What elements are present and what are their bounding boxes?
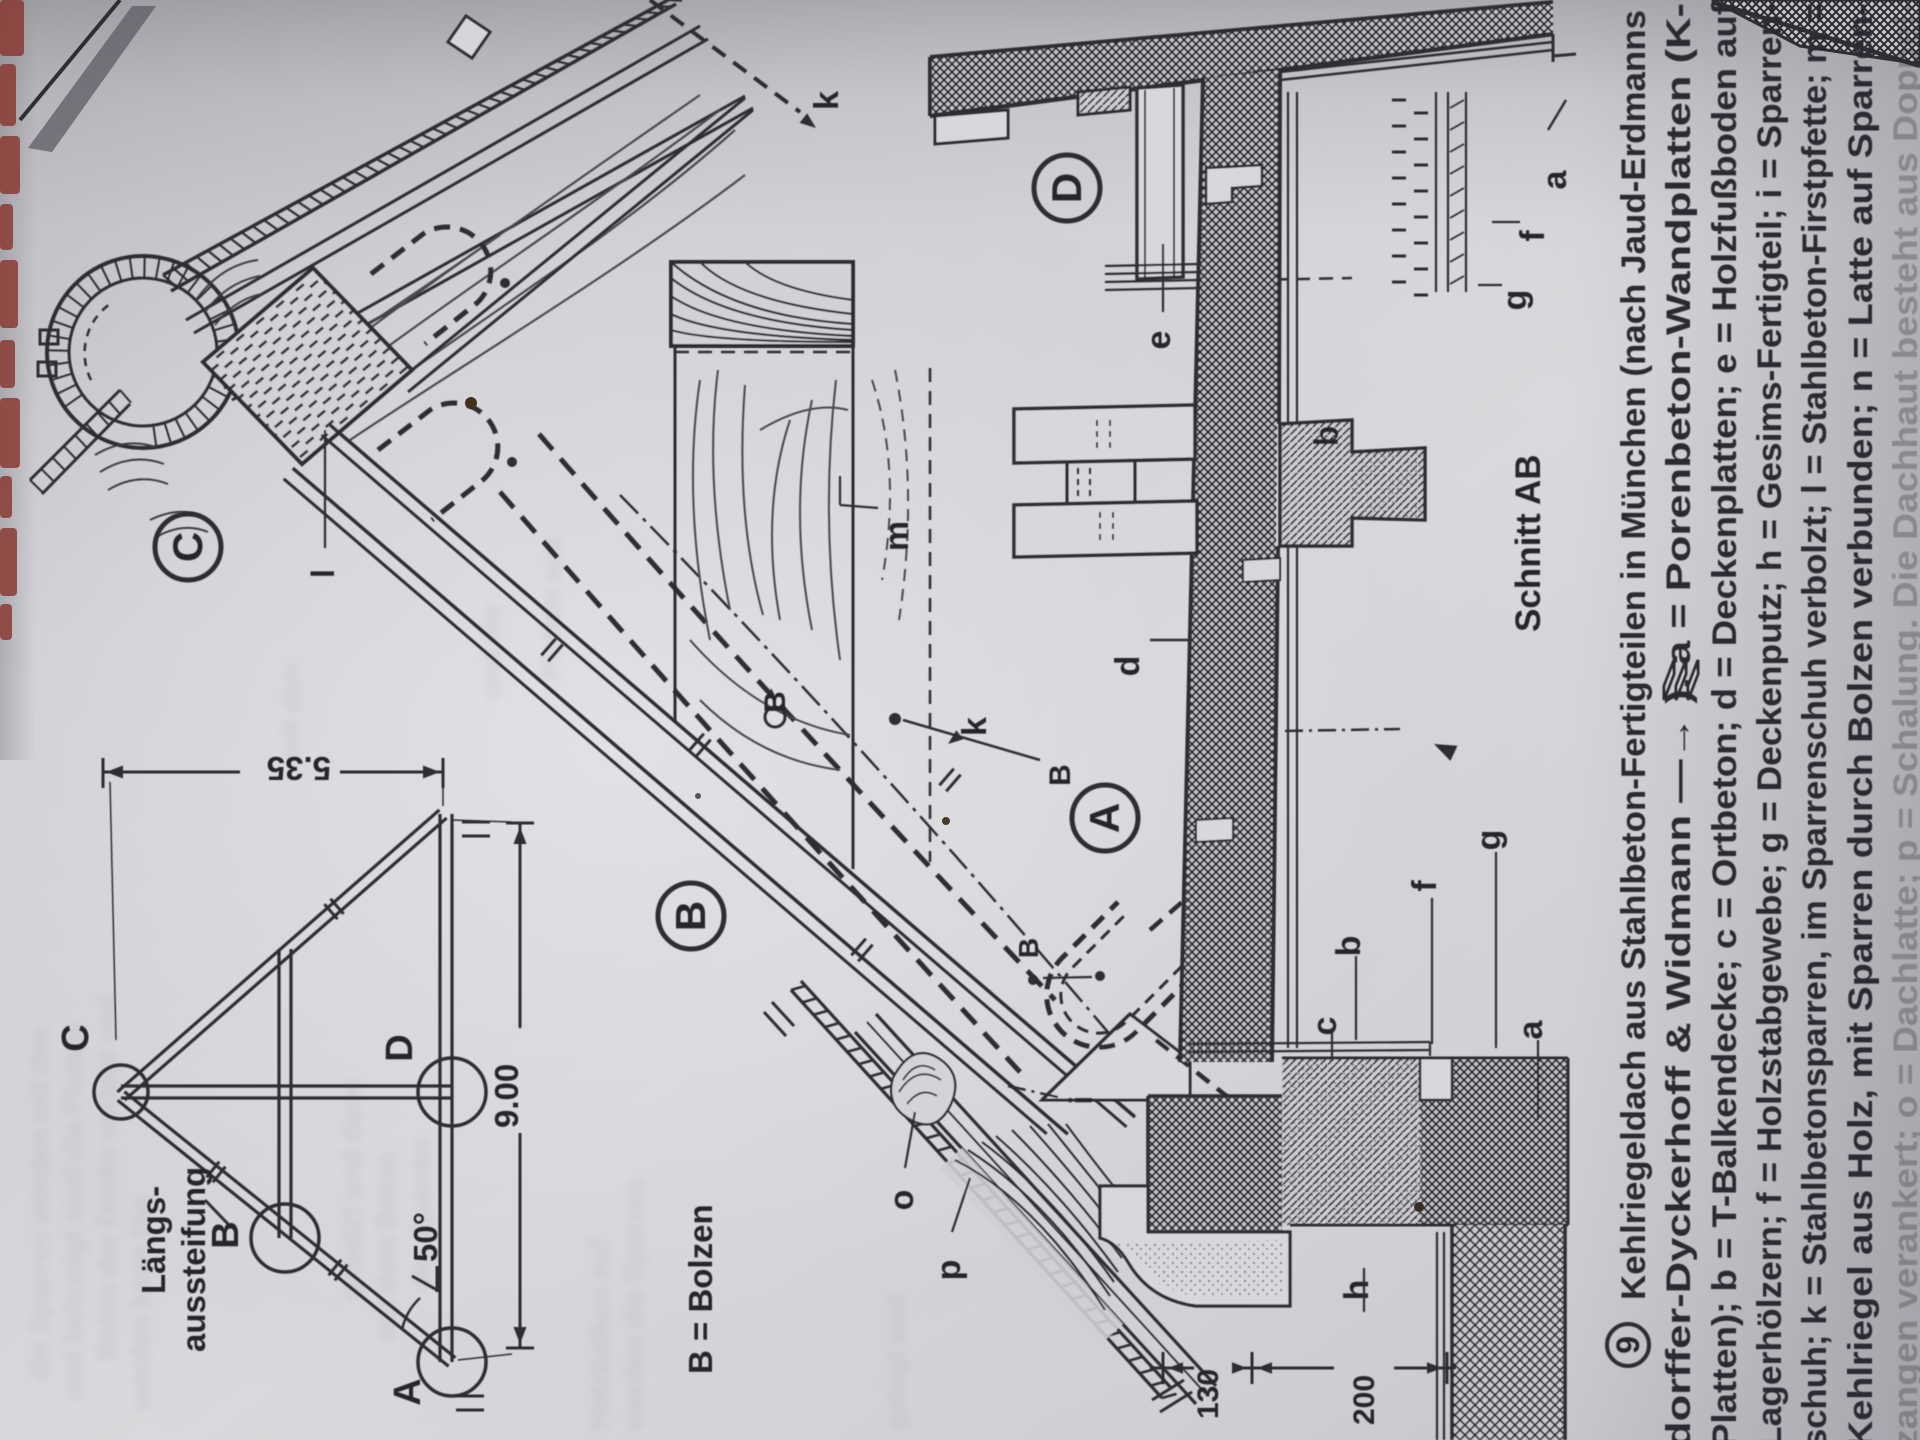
- svg-text:a: a: [1536, 169, 1574, 189]
- svg-text:zangen verankert; o = Dachlatt: zangen verankert; o = Dachlatte; p = Sch…: [1887, 3, 1920, 1440]
- svg-text:b: b: [1308, 426, 1346, 447]
- svg-text:k: k: [956, 717, 994, 736]
- svg-text:o: o: [883, 1190, 921, 1211]
- svg-text:werden die Sparren: werden die Sparren: [619, 1179, 649, 1431]
- svg-text:A: A: [1081, 803, 1128, 833]
- svg-text:130: 130: [1192, 1369, 1225, 1419]
- svg-text:Kehlriegeldach aus Stahlbeton-: Kehlriegeldach aus Stahlbeton-Fertigteil…: [1615, 10, 1653, 1300]
- svg-text:g: g: [1470, 830, 1508, 851]
- svg-text:C: C: [164, 532, 211, 562]
- svg-text:g: g: [1496, 290, 1534, 311]
- svg-text:a: a: [1512, 1019, 1550, 1039]
- svg-text:B = Bolzen: B = Bolzen: [682, 1204, 719, 1374]
- svg-text:i: i: [1063, 1096, 1099, 1105]
- svg-text:und die: und die: [476, 604, 506, 700]
- svg-text:b: b: [1330, 936, 1368, 957]
- svg-text:mit den: mit den: [276, 664, 306, 760]
- svg-text:dorffer-Dyckerhoff & Widmann: dorffer-Dyckerhoff & Widmann —→ ). a = P…: [1660, 3, 1698, 1440]
- svg-text:h: h: [1338, 1280, 1376, 1301]
- svg-text:Platten); b = T-Balkendecke; c: Platten); b = T-Balkendecke; c = Ortbeto…: [1706, 2, 1744, 1440]
- svg-text:p: p: [930, 1260, 968, 1281]
- svg-text:aussteifung: aussteifung: [175, 1167, 212, 1352]
- svg-text:B: B: [759, 691, 792, 713]
- svg-text:9.00: 9.00: [488, 1064, 525, 1128]
- svg-text:l: l: [305, 569, 341, 578]
- svg-text:B: B: [1044, 764, 1077, 786]
- svg-text:Holzbalken auf: Holzbalken auf: [584, 1238, 614, 1430]
- svg-text:Kehlriegel aus Holz, mit Sparr: Kehlriegel aus Holz, mit Sparren durch B…: [1842, 3, 1880, 1440]
- svg-text:k: k: [808, 91, 846, 110]
- svg-text:m: m: [878, 521, 916, 551]
- svg-text:A: A: [387, 1378, 429, 1405]
- svg-text:e: e: [1140, 331, 1178, 350]
- svg-text:die Sparren werden mit den: die Sparren werden mit den: [24, 1026, 54, 1380]
- svg-text:schuh; k = Stahlbetonsparren,: schuh; k = Stahlbetonsparren, im Sparren…: [1796, 3, 1834, 1440]
- svg-text:und befestigt sind die Platten: und befestigt sind die Platten: [58, 1023, 88, 1400]
- svg-text:Längs-: Längs-: [135, 1186, 172, 1294]
- svg-text:Lagerhölzern; f = Holzstabgewe: Lagerhölzern; f = Holzstabgewebe; g = De…: [1751, 3, 1789, 1440]
- svg-text:5.35: 5.35: [267, 750, 331, 787]
- svg-text:gelegt und: gelegt und: [881, 1294, 911, 1431]
- svg-text:f: f: [1514, 230, 1552, 242]
- svg-text:B: B: [1013, 938, 1044, 958]
- svg-text:50°: 50°: [407, 1212, 444, 1262]
- svg-text:c: c: [1306, 1017, 1344, 1036]
- svg-text:d: d: [1109, 656, 1147, 677]
- svg-text:B: B: [667, 901, 714, 931]
- svg-text:f: f: [1406, 880, 1444, 892]
- svg-text:D: D: [379, 1034, 421, 1061]
- svg-text:200: 200: [1348, 1375, 1381, 1425]
- svg-text:9: 9: [1610, 1336, 1646, 1354]
- svg-text:D: D: [1043, 173, 1090, 203]
- svg-text:Schnitt AB: Schnitt AB: [1509, 454, 1548, 632]
- svg-text:C: C: [55, 1024, 97, 1051]
